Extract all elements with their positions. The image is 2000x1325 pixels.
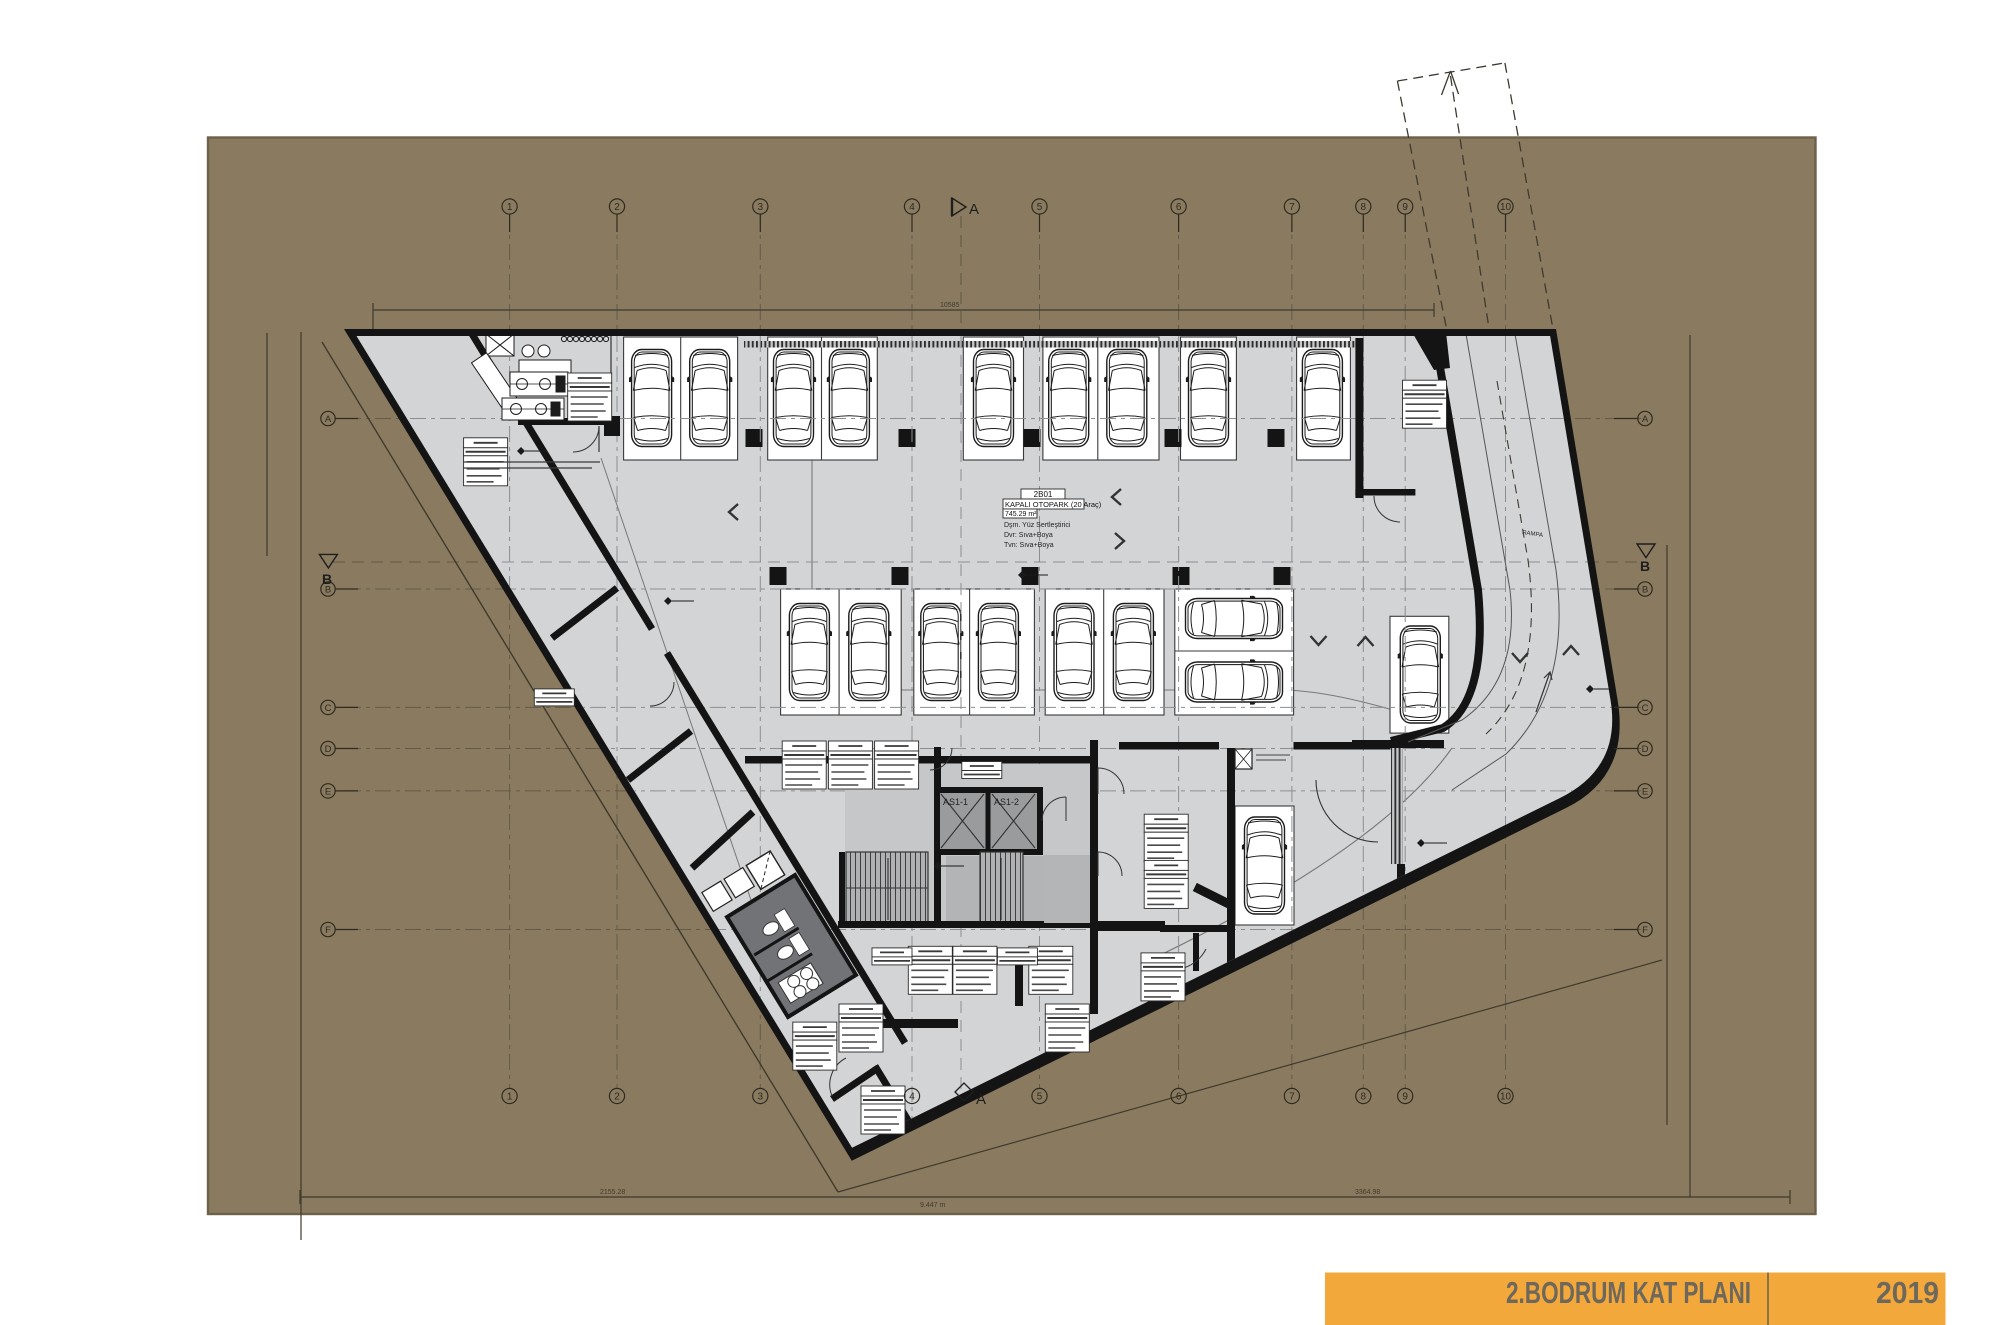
svg-text:1: 1 bbox=[507, 202, 513, 213]
svg-text:F: F bbox=[1642, 925, 1648, 936]
svg-text:3: 3 bbox=[758, 1092, 764, 1103]
svg-text:F: F bbox=[325, 925, 331, 936]
svg-text:3364.98: 3364.98 bbox=[1355, 1189, 1380, 1196]
svg-text:B: B bbox=[1642, 584, 1648, 595]
svg-text:1: 1 bbox=[507, 1092, 513, 1103]
svg-text:A: A bbox=[976, 1091, 986, 1108]
svg-text:2: 2 bbox=[614, 1092, 620, 1103]
svg-text:2155.28: 2155.28 bbox=[600, 1189, 625, 1196]
svg-text:6: 6 bbox=[1176, 202, 1182, 213]
svg-text:2: 2 bbox=[614, 202, 620, 213]
svg-text:8: 8 bbox=[1361, 202, 1367, 213]
svg-text:KAPALI OTOPARK (20 Araç): KAPALI OTOPARK (20 Araç) bbox=[1005, 500, 1102, 509]
svg-text:A: A bbox=[325, 414, 332, 425]
svg-text:AS1-2: AS1-2 bbox=[994, 797, 1019, 807]
svg-text:C: C bbox=[325, 703, 332, 714]
svg-text:2019: 2019 bbox=[1876, 1275, 1939, 1310]
svg-text:Tvn: Sıva+Boya: Tvn: Sıva+Boya bbox=[1004, 542, 1054, 549]
svg-text:5: 5 bbox=[1037, 1092, 1043, 1103]
svg-text:7: 7 bbox=[1289, 1092, 1295, 1103]
svg-text:10585: 10585 bbox=[940, 302, 960, 309]
svg-text:E: E bbox=[1642, 786, 1648, 797]
svg-text:AS1-1: AS1-1 bbox=[943, 797, 968, 807]
svg-text:Dvr: Sıva+Boya: Dvr: Sıva+Boya bbox=[1004, 532, 1053, 539]
svg-text:B: B bbox=[1640, 558, 1650, 574]
svg-text:B: B bbox=[322, 571, 332, 587]
svg-text:8: 8 bbox=[1361, 1092, 1367, 1103]
svg-text:2.BODRUM KAT PLANI: 2.BODRUM KAT PLANI bbox=[1506, 1275, 1751, 1310]
svg-text:E: E bbox=[325, 786, 331, 797]
svg-text:4: 4 bbox=[909, 202, 915, 213]
svg-text:10: 10 bbox=[1500, 1092, 1512, 1103]
svg-text:Dşm. Yüz Sertleştirici: Dşm. Yüz Sertleştirici bbox=[1004, 522, 1071, 529]
svg-text:745.29 m²: 745.29 m² bbox=[1005, 511, 1037, 518]
svg-text:2B01: 2B01 bbox=[1034, 490, 1053, 499]
svg-text:4: 4 bbox=[909, 1092, 915, 1103]
svg-text:D: D bbox=[325, 744, 332, 755]
svg-text:6: 6 bbox=[1176, 1092, 1182, 1103]
svg-text:9.447 m: 9.447 m bbox=[920, 1202, 945, 1209]
svg-text:5: 5 bbox=[1037, 202, 1043, 213]
svg-text:A: A bbox=[969, 201, 979, 218]
svg-text:9: 9 bbox=[1402, 1092, 1408, 1103]
svg-text:A: A bbox=[1642, 414, 1649, 425]
svg-text:10: 10 bbox=[1500, 202, 1512, 213]
svg-text:3: 3 bbox=[758, 202, 764, 213]
svg-text:D: D bbox=[1642, 744, 1649, 755]
svg-text:9: 9 bbox=[1402, 202, 1408, 213]
svg-text:C: C bbox=[1642, 703, 1649, 714]
svg-text:7: 7 bbox=[1289, 202, 1295, 213]
